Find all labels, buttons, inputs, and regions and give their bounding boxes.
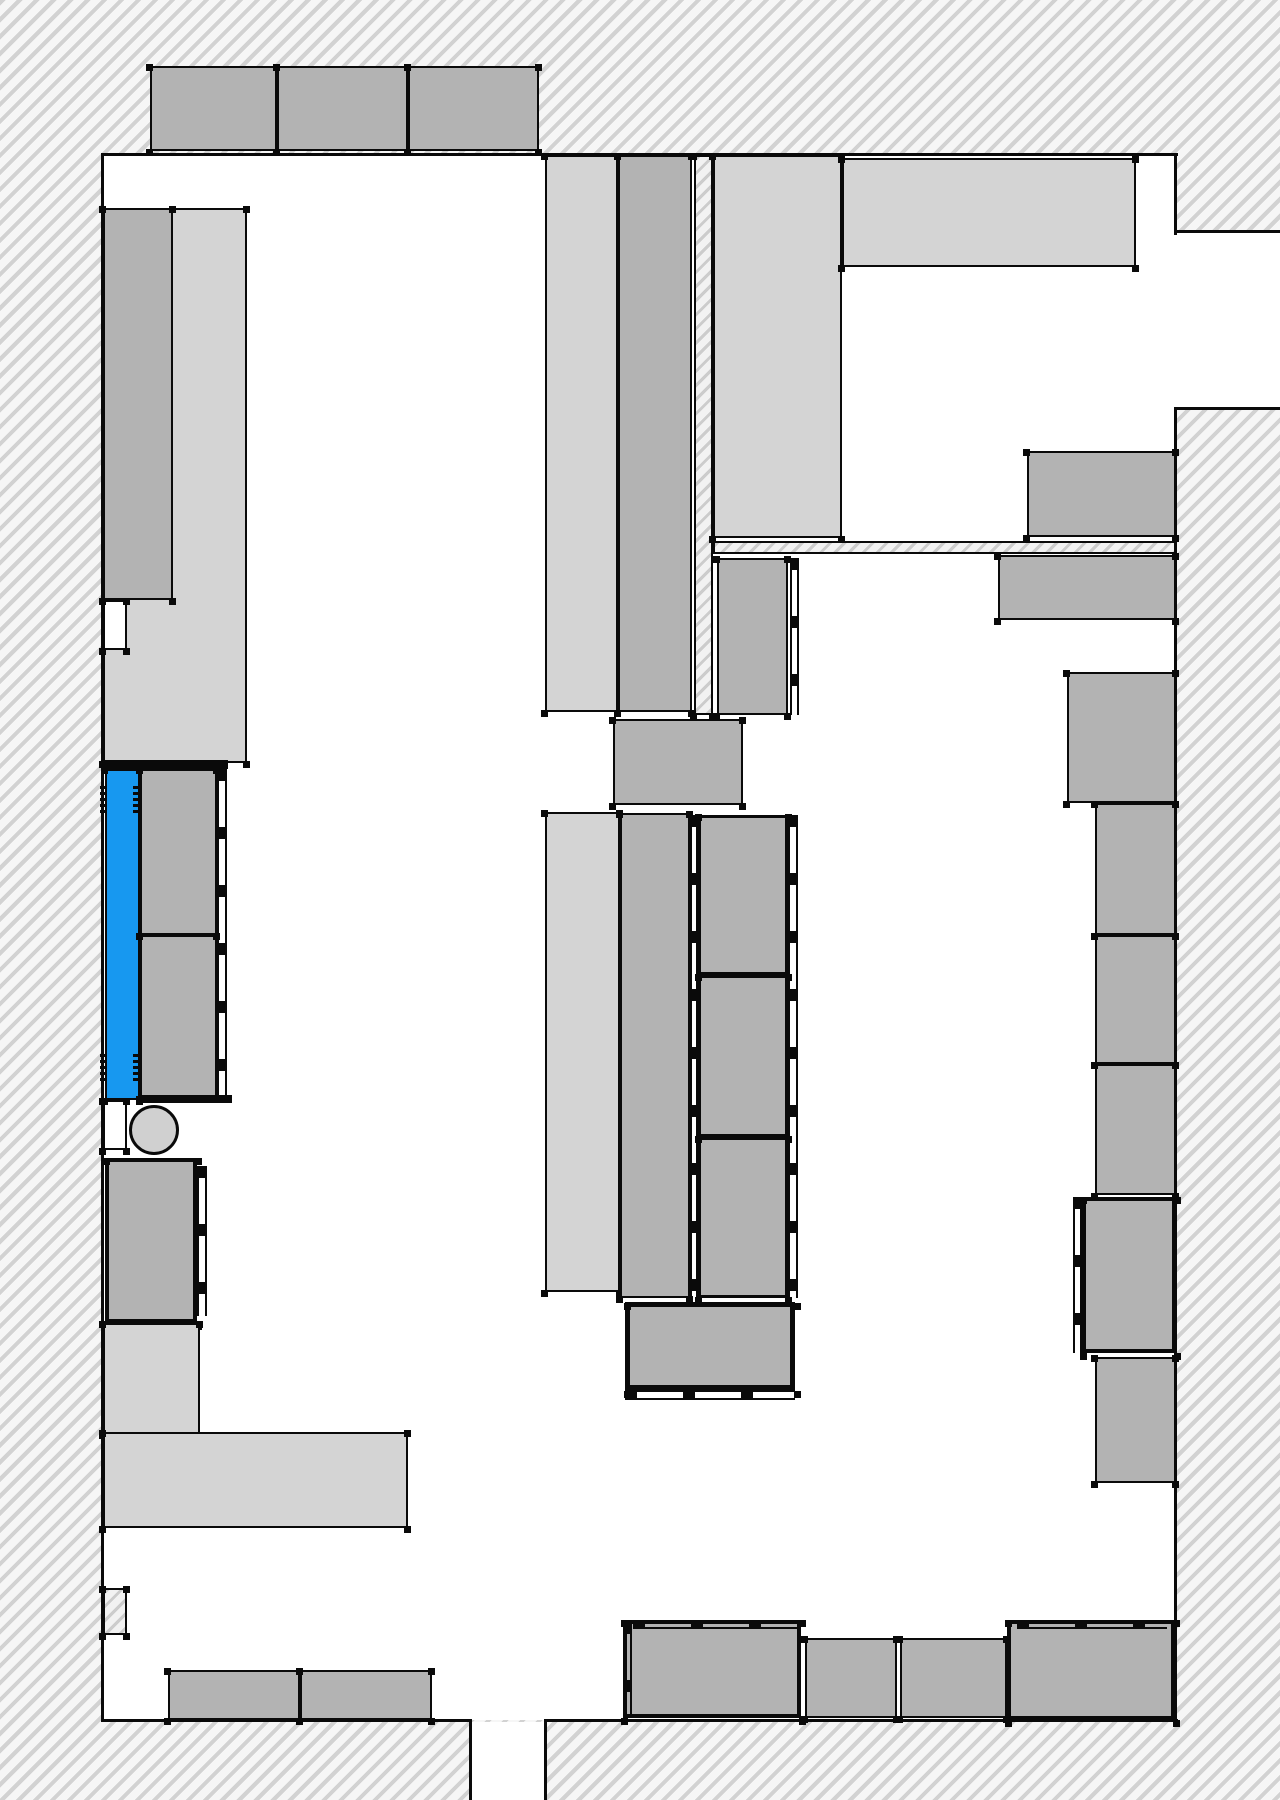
center-box-2[interactable] [698, 975, 788, 1137]
left-service-box[interactable] [105, 1158, 197, 1323]
corner-handle-mark [1023, 449, 1030, 456]
center-lower-light-slab[interactable] [545, 812, 620, 1292]
corner-handle-mark [688, 153, 695, 160]
corner-handle-mark [1091, 801, 1098, 808]
corner-handle-mark [1172, 1481, 1179, 1488]
center-aisle1-gray-shelf[interactable] [618, 155, 692, 712]
right-shelf-e[interactable] [1095, 935, 1176, 1064]
corner-handle-mark [1091, 1062, 1098, 1069]
corner-handle-mark [1172, 933, 1179, 940]
corner-handle-mark [695, 814, 702, 821]
corner-handle-mark [99, 1430, 106, 1437]
corner-handle-mark [1172, 618, 1179, 625]
corner-handle-mark [624, 1303, 631, 1310]
left-counter-top-bar [103, 760, 228, 769]
corner-handle-mark [614, 710, 621, 717]
bottom-left-shelf-2[interactable] [300, 1670, 432, 1720]
bottom-right-shelf-b[interactable] [805, 1638, 897, 1718]
corner-handle-mark [614, 153, 621, 160]
corner-handle-mark [794, 1391, 801, 1398]
corner-handle-mark [1132, 265, 1139, 272]
corner-handle-mark [621, 1718, 628, 1725]
right-shelf-h[interactable] [1095, 1357, 1176, 1483]
corner-handle-mark [404, 64, 411, 71]
wall-pilaster-bottom-left [103, 1588, 127, 1635]
corner-handle-mark [99, 1148, 106, 1155]
corner-handle-mark [1173, 1720, 1180, 1727]
center-box-1[interactable] [698, 815, 788, 975]
corner-handle-mark [616, 811, 623, 818]
left-service-box-rail [197, 1166, 207, 1316]
corner-handle-mark [616, 1296, 623, 1303]
corner-handle-mark [296, 1718, 303, 1725]
corner-handle-mark [164, 1718, 171, 1725]
corner-handle-mark [695, 974, 702, 981]
corner-handle-mark [541, 710, 548, 717]
corner-handle-mark [709, 153, 716, 160]
center-lower-backdrop[interactable] [620, 813, 690, 1298]
corner-handle-mark [713, 556, 720, 563]
corner-handle-mark [99, 1526, 106, 1533]
dock-bottom-edge [1177, 407, 1280, 410]
right-shelf-a[interactable] [1027, 451, 1176, 537]
left-wall-shelf[interactable] [103, 208, 173, 600]
corner-handle-mark [243, 761, 250, 768]
corner-handle-mark [1172, 449, 1179, 456]
corner-handle-mark [1132, 156, 1139, 163]
corner-handle-mark [794, 1303, 801, 1310]
corner-handle-mark [146, 149, 153, 156]
bottom-right-shelf-a-rail [633, 1620, 801, 1629]
corner-handle-mark [1172, 553, 1179, 560]
corner-handle-mark [1172, 1062, 1179, 1069]
corner-handle-mark [838, 265, 845, 272]
corner-handle-mark [123, 648, 130, 655]
corner-handle-mark [123, 1633, 130, 1640]
dock-opening-right [1176, 232, 1280, 407]
corner-handle-mark [195, 1158, 202, 1165]
corner-handle-mark [1023, 535, 1030, 542]
top-shelf-1[interactable] [150, 66, 277, 151]
center-checkout-rail [625, 1390, 795, 1400]
corner-handle-mark [1172, 1355, 1179, 1362]
corner-handle-mark [1005, 1620, 1012, 1627]
center-bridge-box[interactable] [613, 719, 743, 805]
corner-handle-mark [896, 1716, 903, 1723]
corner-handle-mark [801, 1636, 808, 1643]
exit-jamb-right [544, 1719, 547, 1800]
store-floor-plan [0, 0, 1280, 1800]
corner-handle-mark [1063, 670, 1070, 677]
dock-top-edge [1174, 230, 1280, 233]
corner-handle-mark [1174, 1197, 1181, 1204]
corner-handle-mark [1091, 933, 1098, 940]
corner-handle-mark [695, 1136, 702, 1143]
corner-handle-mark [1091, 1481, 1098, 1488]
corner-handle-mark [273, 149, 280, 156]
corner-handle-mark [101, 767, 108, 774]
right-shelf-c[interactable] [1067, 672, 1176, 803]
corner-handle-mark [609, 803, 616, 810]
hinge-mark-top-right [133, 785, 140, 813]
bottom-right-shelf-c[interactable] [900, 1638, 1007, 1718]
corner-handle-mark [838, 536, 845, 543]
corner-handle-mark [99, 206, 106, 213]
corner-handle-mark [1173, 1620, 1180, 1627]
corner-handle-mark [1063, 801, 1070, 808]
corner-handle-mark [896, 1636, 903, 1643]
wall-recess-lower [103, 1100, 127, 1150]
corner-handle-mark [123, 598, 130, 605]
partition-fin-vertical [694, 155, 713, 715]
center-boxcol-rail-right [788, 815, 798, 1298]
right-shelf-b[interactable] [998, 555, 1176, 620]
corner-handle-mark [838, 156, 845, 163]
left-counter-lower[interactable] [140, 935, 217, 1098]
corner-handle-mark [688, 710, 695, 717]
column-circle [129, 1105, 179, 1155]
bottom-right-shelf-a-rail-left [623, 1622, 632, 1718]
center-aisle2-gray-box[interactable] [717, 558, 788, 715]
corner-handle-mark [801, 1716, 808, 1723]
bottom-left-shelf-1[interactable] [168, 1670, 300, 1720]
hinge-mark-bottom-left [100, 1053, 107, 1081]
center-aisle2-rail [790, 558, 799, 715]
corner-handle-mark [1172, 670, 1179, 677]
corner-handle-mark [123, 1586, 130, 1593]
corner-handle-mark [243, 206, 250, 213]
corner-handle-mark [609, 717, 616, 724]
hinge-mark-top-left [100, 785, 107, 813]
corner-handle-mark [1080, 1353, 1087, 1360]
corner-handle-mark [99, 648, 106, 655]
corner-handle-mark [196, 1321, 203, 1328]
corner-handle-mark [994, 553, 1001, 560]
corner-handle-mark [164, 1668, 171, 1675]
center-boxcol-rail-left [690, 815, 698, 1298]
corner-handle-mark [146, 64, 153, 71]
corner-handle-mark [541, 1290, 548, 1297]
corner-handle-mark [101, 1098, 108, 1105]
left-counter-upper[interactable] [140, 769, 217, 935]
corner-handle-mark [1172, 801, 1179, 808]
exit-jamb-left [469, 1719, 472, 1800]
wall-recess-upper [103, 600, 127, 650]
corner-handle-mark [99, 598, 106, 605]
right-shelf-g-rail [1073, 1197, 1082, 1353]
center-box-3[interactable] [698, 1137, 788, 1298]
corner-handle-mark [994, 618, 1001, 625]
corner-handle-mark [404, 149, 411, 156]
corner-handle-mark [103, 1158, 110, 1165]
center-aisle1-light-shelf[interactable] [545, 155, 618, 712]
partition-fin-horizontal [713, 541, 1176, 554]
left-counter-rail [217, 769, 227, 1099]
corner-handle-mark [123, 1148, 130, 1155]
left-lshape-horizontal[interactable] [103, 1432, 408, 1528]
wall-line-right-upper [1174, 153, 1177, 235]
hinge-mark-bottom-right [133, 1053, 140, 1081]
corner-handle-mark [404, 1526, 411, 1533]
corner-handle-mark [169, 598, 176, 605]
corner-handle-mark [169, 206, 176, 213]
corner-handle-mark [535, 64, 542, 71]
top-shelf-3[interactable] [408, 66, 539, 151]
corner-handle-mark [739, 717, 746, 724]
corner-handle-mark [709, 536, 716, 543]
selected-blue-fixture[interactable] [105, 769, 140, 1100]
top-center-wide-shelf[interactable] [842, 158, 1136, 267]
left-lshape-vertical[interactable] [103, 1323, 200, 1434]
corner-handle-mark [1005, 1720, 1012, 1727]
corner-handle-mark [404, 1430, 411, 1437]
bottom-right-shelf-d-rail [1017, 1620, 1167, 1629]
corner-handle-mark [1091, 1355, 1098, 1362]
corner-handle-mark [99, 1586, 106, 1593]
corner-handle-mark [541, 153, 548, 160]
right-shelf-d[interactable] [1095, 803, 1176, 935]
exit-opening-bottom [471, 1722, 546, 1800]
corner-handle-mark [739, 803, 746, 810]
corner-handle-mark [136, 767, 143, 774]
corner-handle-mark [99, 1633, 106, 1640]
bottom-right-shelf-a[interactable] [623, 1620, 801, 1718]
center-checkout-box[interactable] [625, 1302, 795, 1390]
corner-handle-mark [273, 64, 280, 71]
corner-handle-mark [428, 1668, 435, 1675]
center-aisle2-light-shelf[interactable] [713, 155, 842, 538]
corner-handle-mark [99, 1321, 106, 1328]
right-shelf-f[interactable] [1095, 1064, 1176, 1195]
corner-handle-mark [1172, 535, 1179, 542]
corner-handle-mark [541, 810, 548, 817]
right-shelf-g[interactable] [1082, 1197, 1176, 1353]
corner-handle-mark [136, 933, 143, 940]
bottom-right-shelf-d[interactable] [1007, 1620, 1175, 1720]
corner-handle-mark [428, 1718, 435, 1725]
corner-handle-mark [296, 1668, 303, 1675]
top-shelf-2[interactable] [277, 66, 408, 151]
